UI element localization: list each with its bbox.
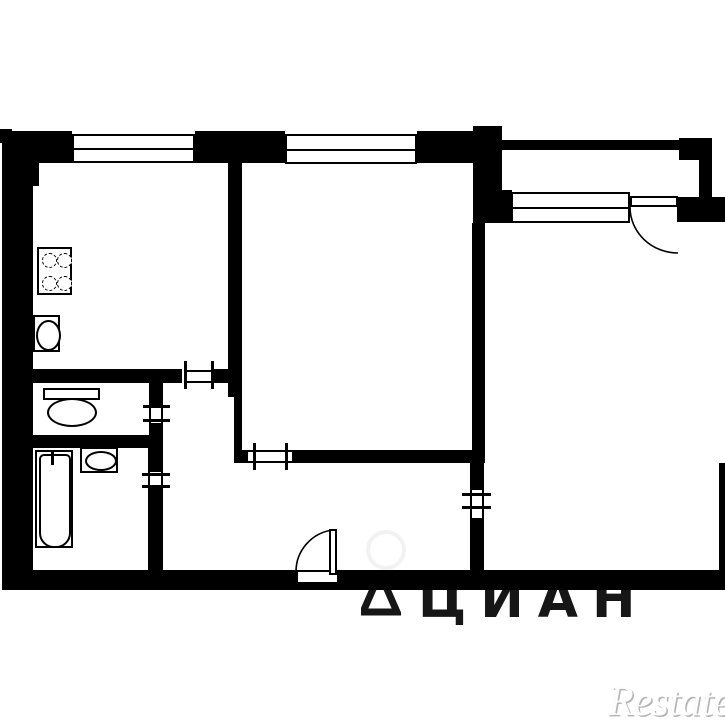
restate-watermark-text: Restate [608,678,725,725]
door-swing-arcs [0,0,725,725]
entrance-door-swing-arc-icon [296,530,333,572]
floor-plan: ЦИАН [0,0,725,725]
balcony-door-swing-arc-icon [630,207,678,253]
